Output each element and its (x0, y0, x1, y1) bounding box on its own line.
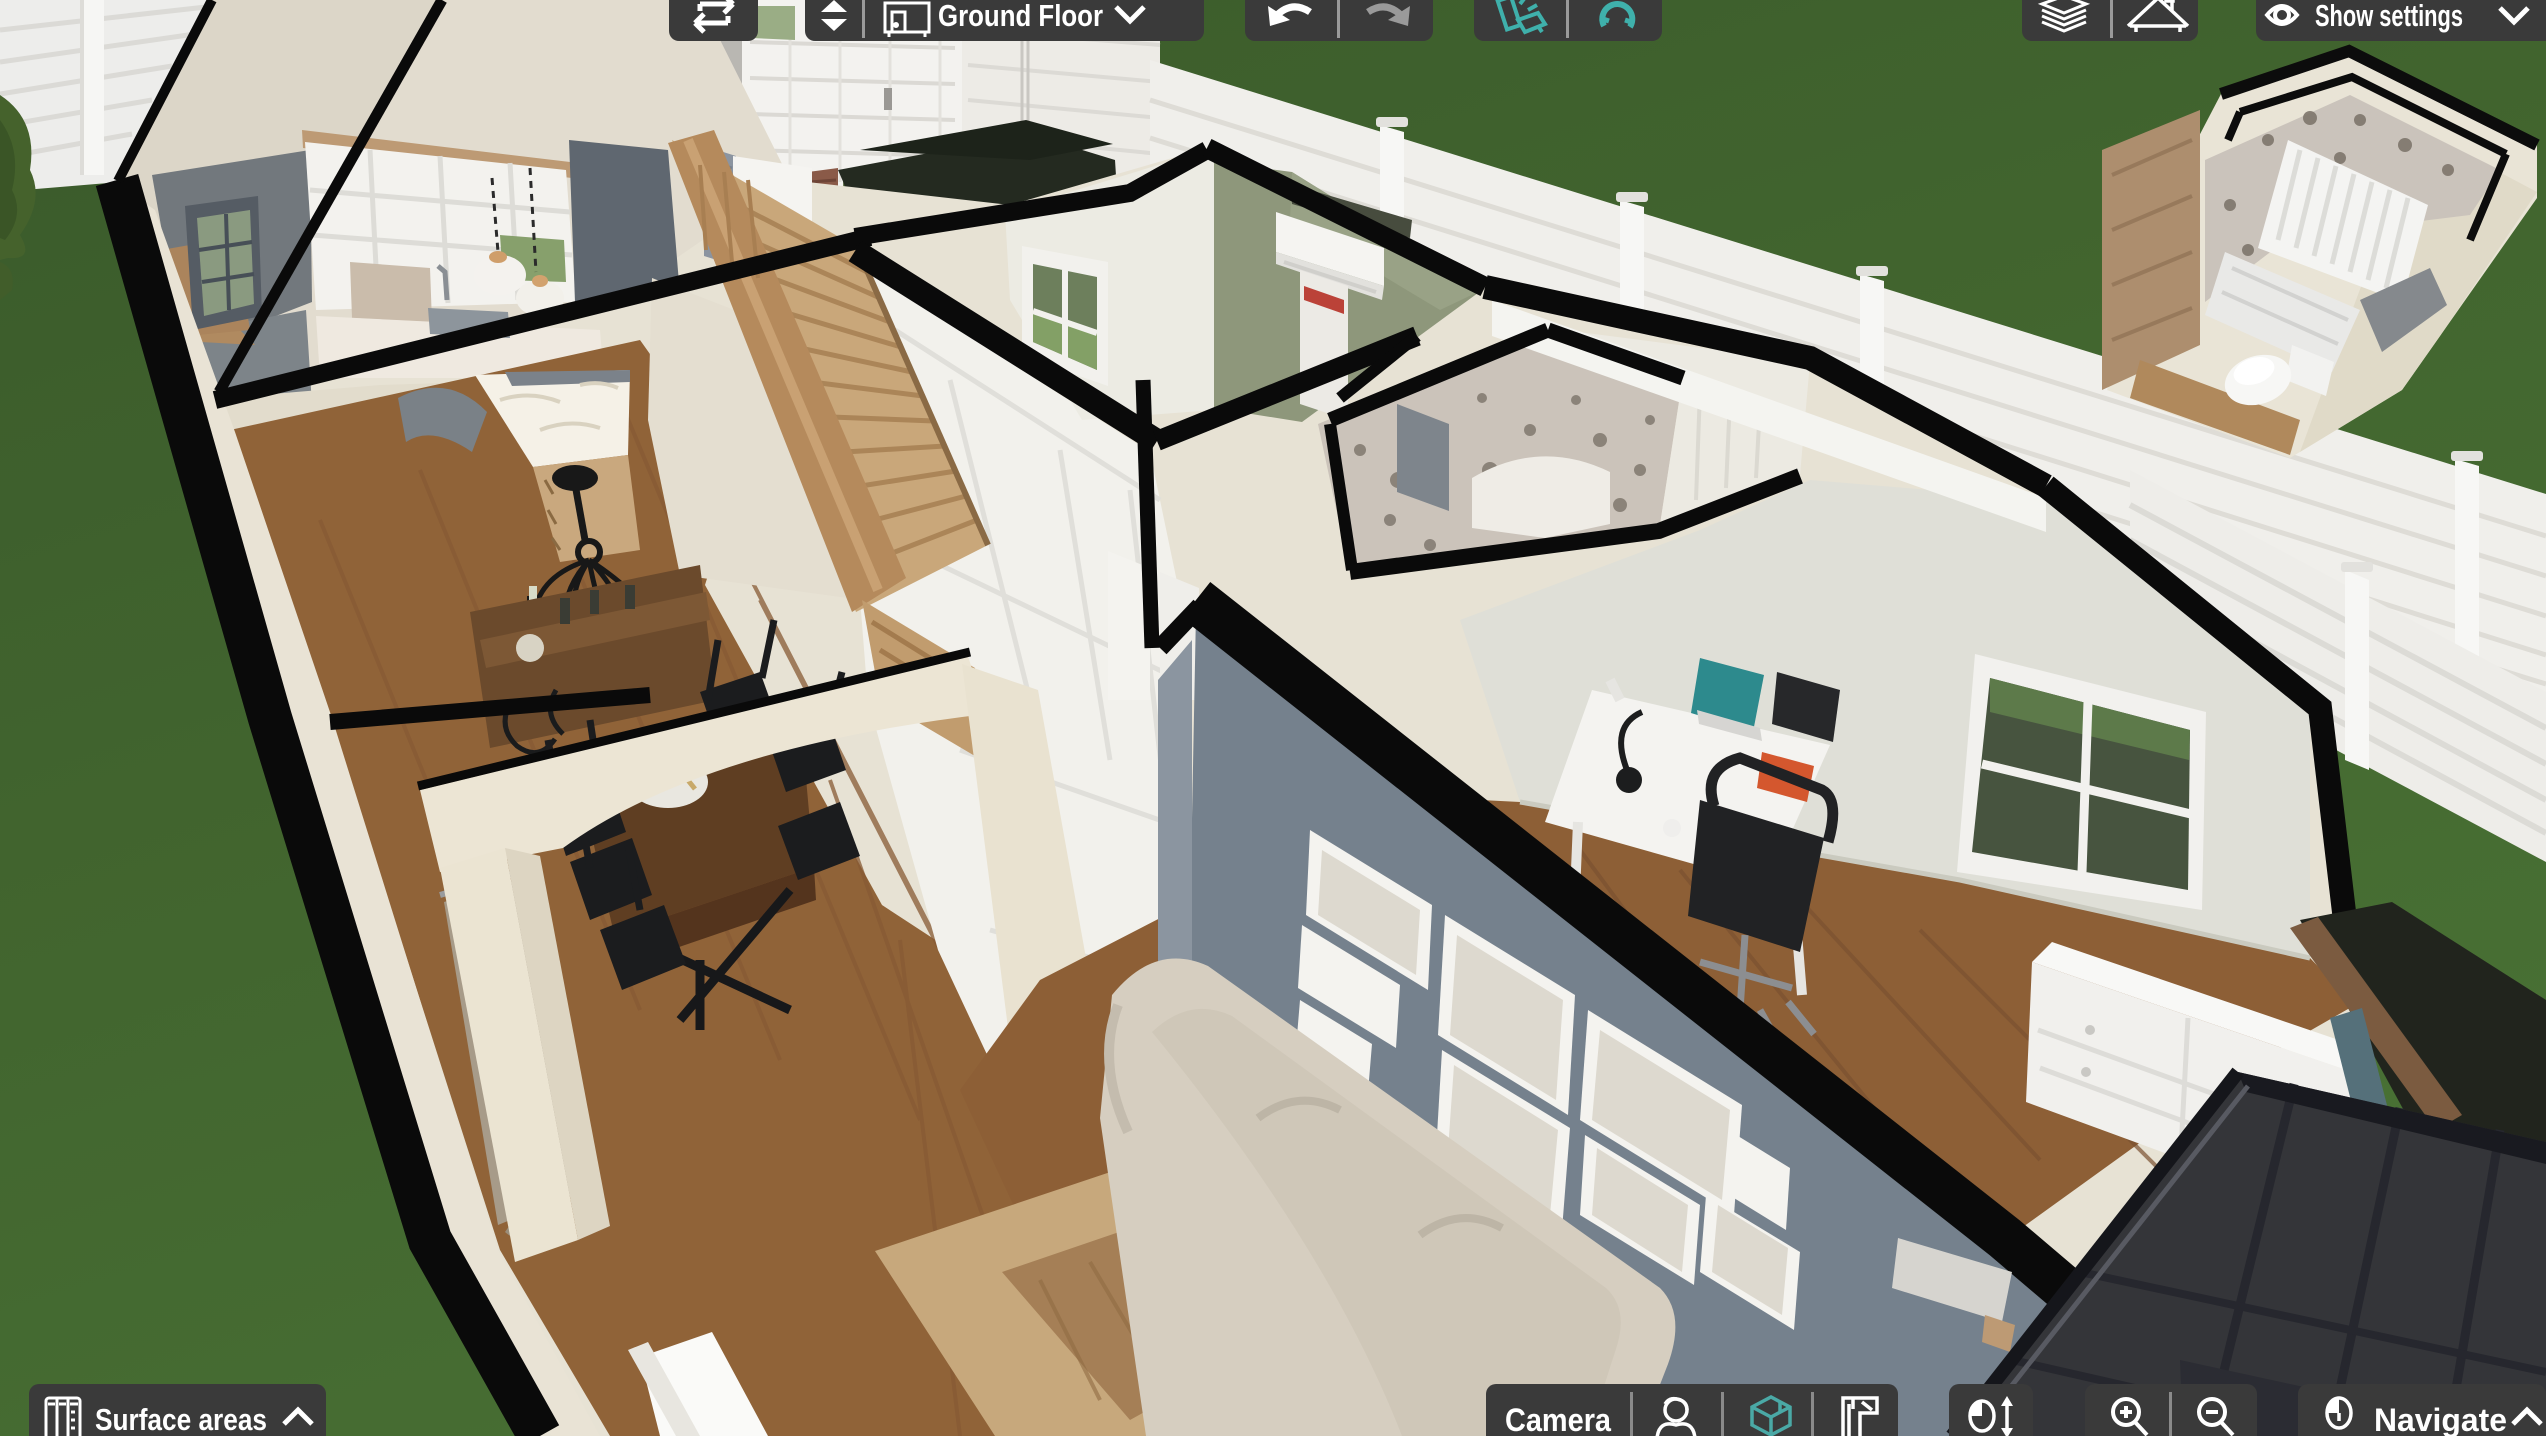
svg-text:Navigate: Navigate (2374, 1402, 2507, 1436)
svg-text:Camera: Camera (1505, 1402, 1611, 1436)
svg-text:Ground Floor: Ground Floor (938, 0, 1103, 33)
svg-text:Surface areas: Surface areas (95, 1402, 267, 1436)
svg-text:Show settings: Show settings (2315, 0, 2463, 33)
